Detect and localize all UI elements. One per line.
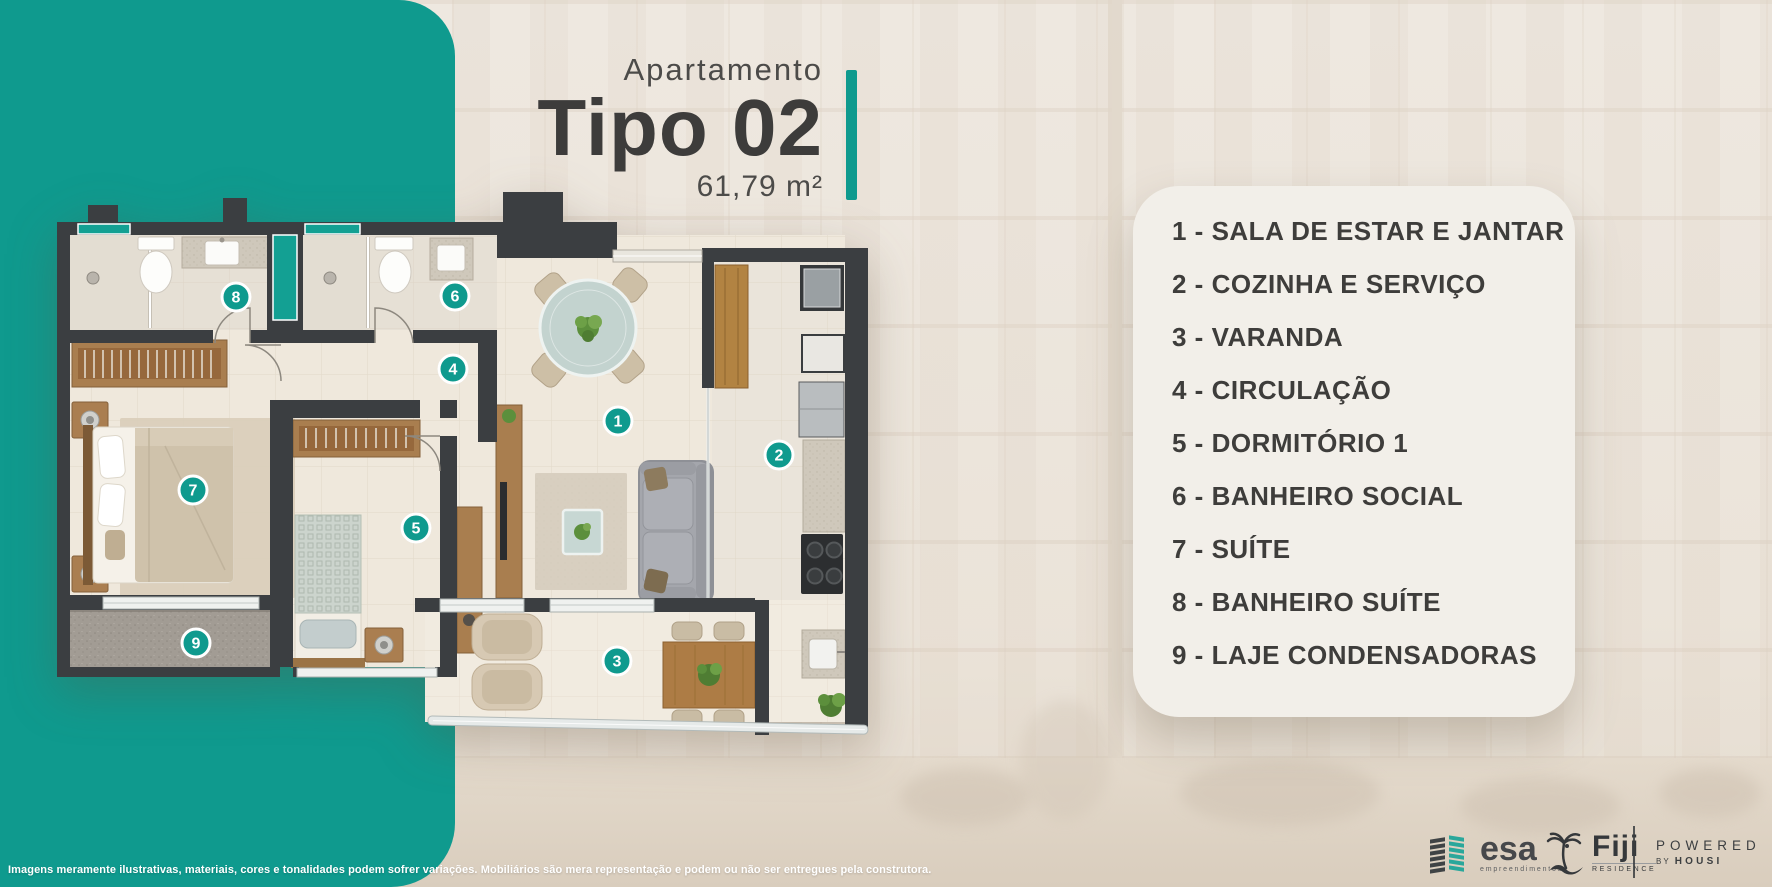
svg-text:8: 8 — [232, 290, 241, 307]
plan-badge-4: 4 — [438, 354, 469, 385]
toilet — [138, 237, 174, 250]
title-accent-bar — [846, 70, 857, 200]
varanda-chair — [672, 622, 702, 640]
pillow — [97, 435, 126, 479]
plant — [502, 409, 516, 423]
plan-badge-1: 1 — [603, 406, 634, 437]
floor-plan: 1 2 3 4 5 6 7 8 9 — [45, 190, 875, 750]
esa-logo: esa empreendimentos — [1428, 828, 1563, 880]
legend-card: 1 - SALA DE ESTAR E JANTAR 2 - COZINHA E… — [1133, 186, 1575, 717]
shower-head — [87, 272, 99, 284]
pillow — [97, 483, 126, 527]
sofa-pillow — [643, 466, 668, 491]
tv — [500, 482, 507, 560]
housi-text: HOUSI — [1675, 856, 1723, 867]
svg-text:5: 5 — [412, 521, 421, 538]
pillow — [300, 620, 356, 648]
footer-divider — [1633, 826, 1635, 878]
fiji-logo: Fiji RESIDENCE — [1546, 830, 1656, 876]
background-bush — [900, 768, 1030, 826]
legend-item-2: 2 - COZINHA E SERVIÇO — [1172, 271, 1575, 297]
kitchen-island — [715, 265, 748, 388]
powered-by-housi: POWERED BY HOUSI — [1656, 838, 1761, 867]
condenser-slab — [70, 610, 280, 667]
dining-furniture — [529, 265, 651, 391]
title-block: Apartamento Tipo 02 61,79 m² — [537, 52, 823, 204]
legend-item-3: 3 - VARANDA — [1172, 324, 1575, 350]
legend-item-6: 6 - BANHEIRO SOCIAL — [1172, 483, 1575, 509]
tv-sideboard — [496, 405, 522, 598]
plan-badge-5: 5 — [401, 513, 432, 544]
background-building-seam — [1108, 0, 1122, 800]
svg-text:1: 1 — [614, 414, 623, 431]
kitchen-counter — [803, 440, 845, 532]
fiji-logo-subtext: RESIDENCE — [1592, 863, 1656, 873]
appliance — [802, 335, 844, 372]
plan-badge-2: 2 — [764, 440, 795, 471]
background-car-silhouette — [1460, 778, 1620, 834]
sofa-pillow — [643, 568, 669, 594]
legend-item-8: 8 - BANHEIRO SUÍTE — [1172, 589, 1575, 615]
teal-duct — [273, 235, 297, 320]
esa-buildings-icon — [1428, 828, 1472, 880]
legend-item-7: 7 - SUÍTE — [1172, 536, 1575, 562]
plan-badge-9: 9 — [181, 628, 212, 659]
cushion — [105, 530, 125, 560]
svg-text:3: 3 — [613, 654, 622, 671]
suite-furniture — [72, 340, 233, 592]
background-palm-silhouette — [1020, 700, 1110, 820]
legend-item-9: 9 - LAJE CONDENSADORAS — [1172, 642, 1575, 668]
plan-badge-7: 7 — [178, 475, 209, 506]
floor-plan-svg: 1 2 3 4 5 6 7 8 9 — [45, 190, 875, 750]
sink — [437, 245, 465, 271]
teal-window — [78, 224, 130, 234]
page-title: Tipo 02 — [537, 90, 823, 166]
powered-by-text: BY — [1656, 857, 1671, 866]
svg-text:7: 7 — [189, 483, 198, 500]
toilet — [375, 237, 413, 250]
svg-text:4: 4 — [449, 362, 458, 379]
svg-text:9: 9 — [192, 636, 201, 653]
dorm1-blanket — [295, 515, 361, 613]
service-sink — [809, 639, 837, 669]
plan-badge-8: 8 — [221, 282, 252, 313]
background-bush — [1180, 760, 1380, 826]
plan-badge-3: 3 — [602, 646, 633, 677]
plan-badge-6: 6 — [440, 281, 471, 312]
teal-window — [305, 224, 360, 234]
varanda-chair — [714, 622, 744, 640]
dorm1-bed-footboard — [291, 658, 365, 668]
fiji-logo-text: Fiji — [1592, 833, 1656, 860]
svg-text:6: 6 — [451, 289, 460, 306]
sink — [205, 241, 239, 265]
legend-item-5: 5 - DORMITÓRIO 1 — [1172, 430, 1575, 456]
shower-area — [303, 235, 368, 330]
powered-text: POWERED — [1656, 838, 1761, 853]
disclaimer-text: Imagens meramente ilustrativas, materiai… — [8, 864, 931, 876]
shower-head — [324, 272, 336, 284]
palm-tree-icon — [1546, 830, 1586, 876]
legend-item-1: 1 - SALA DE ESTAR E JANTAR — [1172, 218, 1575, 244]
background-bush — [1660, 768, 1760, 818]
svg-text:2: 2 — [775, 448, 784, 465]
legend-item-4: 4 - CIRCULAÇÃO — [1172, 377, 1575, 403]
suite-bed-headboard — [83, 425, 93, 585]
window — [297, 668, 437, 677]
